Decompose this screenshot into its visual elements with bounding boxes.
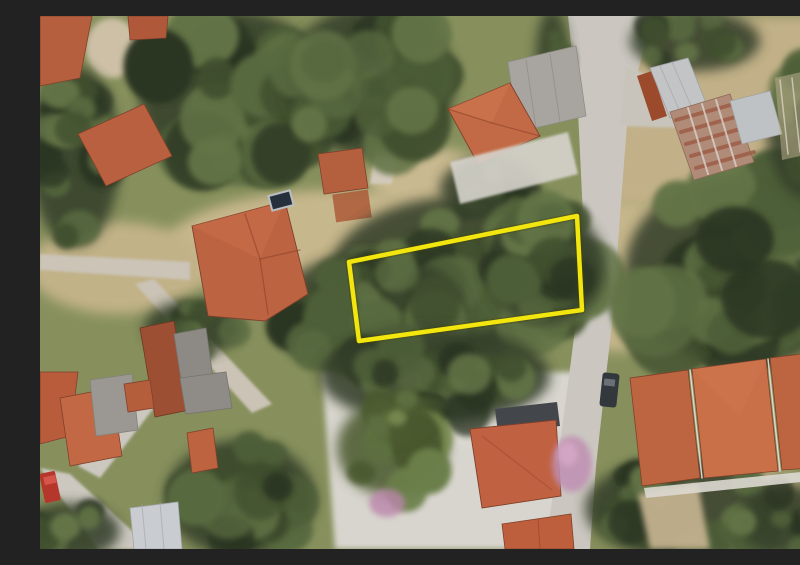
row-house-roof-1 xyxy=(630,370,700,486)
parked-car-dark xyxy=(599,372,619,408)
aerial-photo xyxy=(40,16,800,549)
bottom-house-red-roof xyxy=(470,420,561,508)
bougainvillea-pink-bright xyxy=(558,442,578,466)
gable-roof-top-edge xyxy=(128,16,168,40)
bl-gray-roof xyxy=(180,372,232,414)
bl-red-gable xyxy=(124,380,154,412)
bl-small-red-roof xyxy=(187,428,218,473)
brick-paved-patch xyxy=(332,190,372,223)
small-roof-mid-left xyxy=(318,148,368,194)
bl-metal-roof xyxy=(130,502,182,549)
aerial-photo-canvas xyxy=(40,16,800,549)
lone-tree-in-yard xyxy=(363,388,431,440)
parked-car-windshield xyxy=(604,378,616,386)
pink-flowers-garden xyxy=(369,489,405,517)
